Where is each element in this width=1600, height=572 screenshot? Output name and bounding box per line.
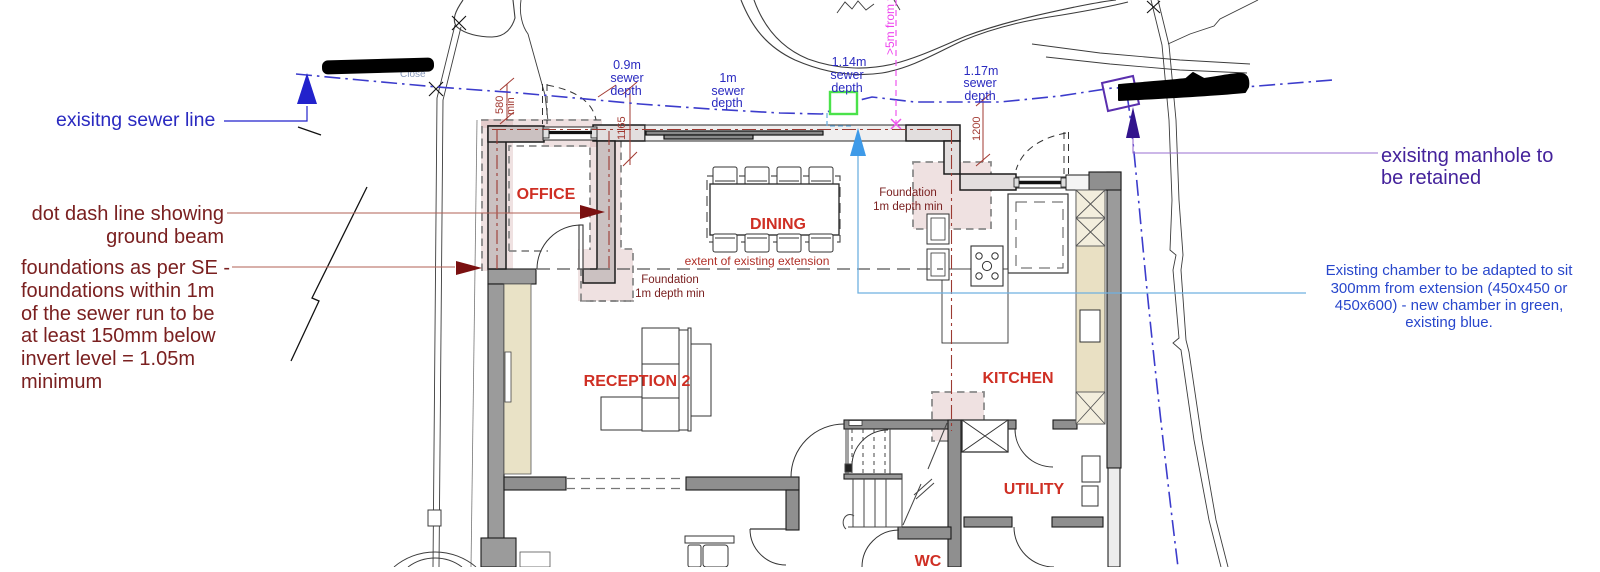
svg-text:be retained: be retained <box>1381 167 1481 189</box>
svg-text:RECEPTION 2: RECEPTION 2 <box>584 373 691 390</box>
svg-text:foundations within 1m: foundations within 1m <box>21 280 214 302</box>
svg-text:at least 150mm below: at least 150mm below <box>21 325 216 347</box>
svg-text:sewer: sewer <box>963 76 996 90</box>
svg-text:1m depth min: 1m depth min <box>873 201 943 213</box>
svg-text:existing blue.: existing blue. <box>1405 314 1493 331</box>
svg-text:1.14m: 1.14m <box>832 55 867 69</box>
svg-text:1165: 1165 <box>616 116 628 140</box>
svg-text:KITCHEN: KITCHEN <box>982 370 1053 387</box>
svg-text:depth: depth <box>831 81 862 95</box>
svg-text:Foundation: Foundation <box>879 187 937 199</box>
svg-text:min: min <box>505 97 517 115</box>
svg-text:Existing chamber to be adapted: Existing chamber to be adapted to sit <box>1326 262 1574 279</box>
svg-text:DINING: DINING <box>750 216 806 233</box>
svg-text:OFFICE: OFFICE <box>517 186 576 203</box>
svg-text:sewer: sewer <box>830 68 863 82</box>
svg-text:dot dash line showing: dot dash line showing <box>32 203 224 225</box>
svg-text:Foundation: Foundation <box>641 274 699 286</box>
svg-text:WC: WC <box>915 553 942 567</box>
svg-text:of the sewer run to be: of the sewer run to be <box>21 303 214 325</box>
svg-text:depth: depth <box>711 96 742 110</box>
svg-text:foundations as per SE -: foundations as per SE - <box>21 257 230 279</box>
svg-text:depth: depth <box>964 89 995 103</box>
svg-text:extent of existing extension: extent of existing extension <box>685 254 830 268</box>
svg-text:sewer: sewer <box>610 71 643 85</box>
svg-text:minimum: minimum <box>21 371 102 393</box>
svg-text:1200: 1200 <box>971 117 983 141</box>
svg-text:depth: depth <box>610 84 641 98</box>
svg-text:exisitng sewer line: exisitng sewer line <box>56 109 215 131</box>
svg-text:UTILITY: UTILITY <box>1004 481 1065 498</box>
svg-text:1m: 1m <box>719 71 736 85</box>
svg-text:450x600) - new chamber in gree: 450x600) - new chamber in green, <box>1335 297 1563 314</box>
svg-text:300mm from extension (450x450: 300mm from extension (450x450 or <box>1331 280 1568 297</box>
svg-text:invert level = 1.05m: invert level = 1.05m <box>21 348 195 370</box>
svg-text:1m depth min: 1m depth min <box>635 288 705 300</box>
svg-text:>5m from th: >5m from th <box>883 0 897 55</box>
svg-text:0.9m: 0.9m <box>613 58 641 72</box>
svg-text:ground beam: ground beam <box>106 226 224 248</box>
svg-text:exisitng manhole to: exisitng manhole to <box>1381 145 1553 167</box>
